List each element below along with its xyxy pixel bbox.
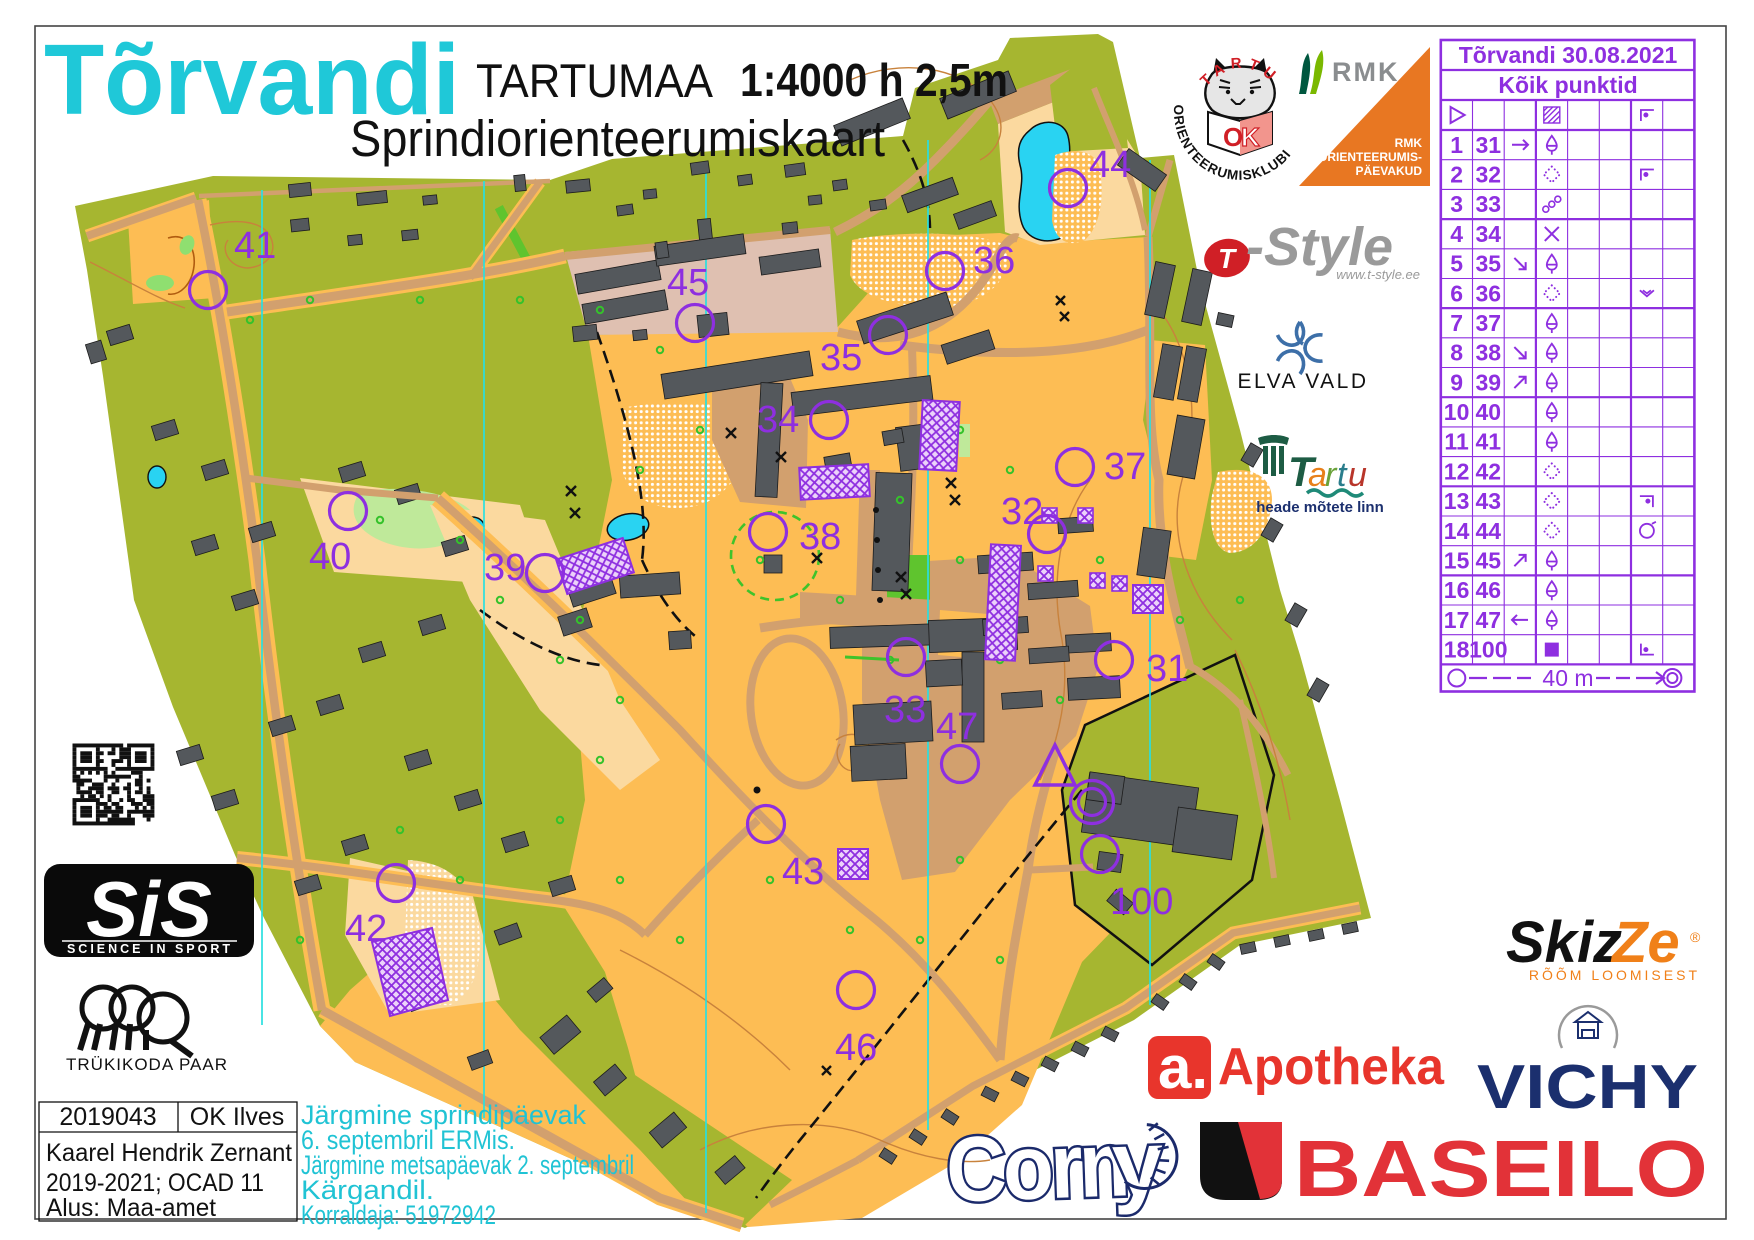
svg-text:14: 14 — [1444, 518, 1470, 544]
svg-text:heade mõtete linn: heade mõtete linn — [1256, 499, 1384, 516]
svg-text:1: 1 — [1450, 132, 1463, 158]
svg-text:9: 9 — [1450, 369, 1463, 395]
svg-text:10: 10 — [1444, 399, 1470, 425]
svg-text:TARTUMAA: TARTUMAA — [476, 54, 714, 107]
svg-text:®: ® — [1690, 929, 1701, 945]
svg-text:T: T — [1218, 243, 1238, 274]
svg-text:Korraldaja: 51972942: Korraldaja: 51972942 — [301, 1200, 496, 1230]
svg-text:31: 31 — [1146, 648, 1188, 690]
svg-text:www.t-style.ee: www.t-style.ee — [1336, 267, 1420, 282]
svg-text:6: 6 — [1450, 280, 1463, 306]
svg-text:33: 33 — [1476, 191, 1502, 217]
svg-text:11: 11 — [1444, 429, 1469, 455]
svg-text:40: 40 — [1476, 399, 1502, 425]
svg-text:40: 40 — [309, 536, 351, 578]
svg-text:16: 16 — [1444, 577, 1470, 603]
svg-text:42: 42 — [345, 908, 387, 950]
svg-text:3: 3 — [1450, 191, 1463, 217]
svg-text:43: 43 — [1476, 488, 1502, 514]
svg-text:38: 38 — [1476, 340, 1502, 366]
svg-text:39: 39 — [484, 547, 526, 589]
svg-text:17: 17 — [1444, 607, 1470, 633]
svg-text:32: 32 — [1476, 162, 1502, 188]
svg-text:Kõik punktid: Kõik punktid — [1498, 72, 1637, 98]
svg-text:Sprindiorienteerumiskaart: Sprindiorienteerumiskaart — [350, 110, 885, 167]
svg-text:46: 46 — [835, 1027, 877, 1069]
svg-text:Apotheka: Apotheka — [1218, 1038, 1445, 1096]
svg-text:RMK: RMK — [1332, 57, 1400, 87]
svg-text:2019043: 2019043 — [59, 1103, 156, 1131]
svg-text:4: 4 — [1450, 221, 1463, 247]
svg-text:33: 33 — [884, 689, 926, 731]
svg-text:100: 100 — [1469, 637, 1507, 663]
svg-text:37: 37 — [1476, 310, 1502, 336]
svg-text:Tõrvandi 30.08.2021: Tõrvandi 30.08.2021 — [1459, 42, 1678, 68]
svg-text:35: 35 — [820, 337, 862, 379]
svg-text:47: 47 — [1476, 607, 1502, 633]
svg-text:45: 45 — [1476, 548, 1502, 574]
svg-text:40 m: 40 m — [1542, 665, 1593, 691]
svg-text:18: 18 — [1444, 637, 1470, 663]
svg-text:2019-2021; OCAD 11: 2019-2021; OCAD 11 — [46, 1169, 264, 1197]
svg-text:SiS: SiS — [86, 865, 212, 953]
svg-text:a.: a. — [1158, 1034, 1208, 1101]
svg-text:36: 36 — [1476, 280, 1502, 306]
svg-text:SCIENCE IN SPORT: SCIENCE IN SPORT — [67, 942, 233, 956]
svg-text:TRÜKIKODA PAAR: TRÜKIKODA PAAR — [66, 1055, 228, 1074]
svg-text:RMK: RMK — [1395, 136, 1423, 150]
svg-text:38: 38 — [799, 516, 841, 558]
svg-text:Kaarel Hendrik Zernant: Kaarel Hendrik Zernant — [46, 1139, 292, 1167]
svg-text:K: K — [1241, 122, 1260, 152]
svg-text:7: 7 — [1450, 310, 1463, 336]
svg-text:2: 2 — [1450, 162, 1463, 188]
svg-text:32: 32 — [1001, 491, 1043, 533]
svg-text:44: 44 — [1089, 144, 1131, 186]
svg-text:BASEILO: BASEILO — [1294, 1124, 1708, 1213]
svg-text:44: 44 — [1476, 518, 1502, 544]
svg-text:RÕÕM LOOMISEST: RÕÕM LOOMISEST — [1529, 967, 1700, 983]
svg-text:Ze: Ze — [1610, 910, 1680, 975]
svg-text:ORIENTEERUMIS-: ORIENTEERUMIS- — [1318, 150, 1422, 164]
svg-text:47: 47 — [936, 706, 978, 748]
svg-text:15: 15 — [1444, 548, 1470, 574]
svg-text:Corn: Corn — [945, 1113, 1128, 1221]
svg-text:43: 43 — [782, 851, 824, 893]
svg-text:37: 37 — [1104, 446, 1146, 488]
svg-text:13: 13 — [1444, 488, 1470, 514]
svg-text:34: 34 — [1476, 221, 1502, 247]
svg-text:39: 39 — [1476, 369, 1502, 395]
svg-text:ELVA VALD: ELVA VALD — [1237, 370, 1368, 393]
svg-text:31: 31 — [1476, 132, 1502, 158]
svg-text:46: 46 — [1476, 577, 1502, 603]
svg-text:100: 100 — [1110, 881, 1173, 923]
svg-text:12: 12 — [1444, 458, 1470, 484]
svg-text:OK Ilves: OK Ilves — [190, 1103, 284, 1131]
svg-text:VICHY: VICHY — [1477, 1053, 1698, 1122]
svg-text:41: 41 — [1476, 429, 1502, 455]
svg-text:42: 42 — [1476, 458, 1502, 484]
svg-text:PÄEVAKUD: PÄEVAKUD — [1356, 163, 1423, 178]
svg-text:Alus: Maa-amet: Alus: Maa-amet — [46, 1194, 216, 1222]
svg-text:36: 36 — [973, 240, 1015, 282]
svg-text:35: 35 — [1476, 251, 1502, 277]
svg-text:Skiz: Skiz — [1506, 910, 1622, 975]
svg-text:1:4000 h 2,5m: 1:4000 h 2,5m — [740, 54, 1008, 106]
svg-text:45: 45 — [667, 262, 709, 304]
svg-text:u: u — [1348, 456, 1367, 494]
svg-text:34: 34 — [757, 399, 799, 441]
svg-text:8: 8 — [1450, 340, 1463, 366]
svg-text:5: 5 — [1450, 251, 1463, 277]
svg-text:41: 41 — [234, 225, 276, 267]
